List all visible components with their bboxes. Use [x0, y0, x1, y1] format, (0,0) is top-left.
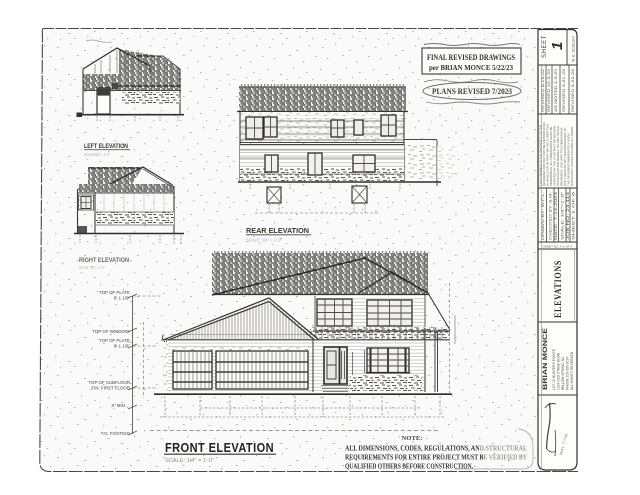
svg-text:JOB NO: 23-114: JOB NO: 23-114	[566, 192, 570, 240]
svg-text:DATE: 7-14-2023: DATE: 7-14-2023	[554, 192, 558, 240]
svg-text:W. E. SCULLEY: W. E. SCULLEY	[572, 35, 576, 62]
svg-text:TOP OF WINDOW: TOP OF WINDOW	[92, 329, 130, 334]
svg-text:CHECKED BY: B.M.: CHECKED BY: B.M.	[549, 192, 553, 240]
svg-text:REVISED 10-3-22: REVISED 10-3-22	[547, 69, 551, 112]
svg-text:SCALE: 1/4" = 1'-0": SCALE: 1/4" = 1'-0"	[79, 265, 105, 270]
svg-text:SCALE: 1/4" = 1'-0": SCALE: 1/4" = 1'-0"	[165, 458, 214, 464]
svg-text:REQUIREMENTS FOR ENTIRE PROJEC: REQUIREMENTS FOR ENTIRE PROJECT MUST BE …	[345, 454, 527, 462]
svg-text:PLANS REVISED 7/2023: PLANS REVISED 7/2023	[432, 87, 512, 96]
svg-text:BRIAN MONCE: BRIAN MONCE	[543, 328, 549, 390]
svg-text:AS NOTED 1-9-23: AS NOTED 1-9-23	[554, 69, 558, 112]
svg-text:REVISED 3-21-23: REVISED 3-21-23	[562, 69, 566, 112]
svg-text:ELEVATIONS: ELEVATIONS	[554, 260, 564, 318]
svg-text:SHEET NO. A-1 OF 6: SHEET NO. A-1 OF 6	[543, 245, 572, 249]
svg-text:SCALE: 1/4"=1'-0": SCALE: 1/4"=1'-0"	[561, 191, 565, 240]
svg-text:per BRIAN MONCE 5/22/23: per BRIAN MONCE 5/22/23	[429, 63, 513, 72]
svg-text:FRONT ELEVATION: FRONT ELEVATION	[165, 440, 274, 455]
svg-text:8'-1 1/8": 8'-1 1/8"	[114, 296, 131, 301]
svg-text:TOP OF SUBFLOOR: TOP OF SUBFLOOR	[88, 380, 130, 385]
svg-text:ALL DIMENSIONS, CODES, REGULAT: ALL DIMENSIONS, CODES, REGULATIONS, AND …	[345, 445, 527, 453]
svg-text:TOP OF PLATE: TOP OF PLATE	[99, 338, 130, 343]
svg-text:TOP OF PLATE: TOP OF PLATE	[99, 290, 130, 295]
svg-text:RIGHT ELEVATION: RIGHT ELEVATION	[79, 257, 129, 264]
svg-text:9'-1 1/8": 9'-1 1/8"	[114, 344, 131, 349]
svg-text:1: 1	[549, 42, 566, 50]
svg-text:ALL RIGHTS RESERVED: ALL RIGHTS RESERVED	[570, 351, 574, 390]
svg-text:SHEET 1 OF 6: SHEET 1 OF 6	[572, 192, 576, 240]
svg-text:LEFT ELEVATION: LEFT ELEVATION	[84, 143, 128, 150]
svg-text:T.O. FOOTING: T.O. FOOTING	[101, 431, 131, 436]
svg-text:PHONE 919-555-0134: PHONE 919-555-0134	[566, 357, 570, 390]
svg-text:REVISED 5-22-23: REVISED 5-22-23	[571, 69, 575, 112]
svg-text:SCALE: 1/4" = 1'-0": SCALE: 1/4" = 1'-0"	[246, 238, 282, 243]
svg-text:REAR ELEVATION: REAR ELEVATION	[246, 226, 309, 235]
svg-text:SHEET: SHEET	[542, 35, 548, 58]
svg-text:FIN. FIRST FLOOR: FIN. FIRST FLOOR	[92, 386, 130, 391]
svg-text:FINAL REVISED DRAWINGS: FINAL REVISED DRAWINGS	[427, 53, 515, 62]
svg-text:1234 OLD STAGE ROAD: 1234 OLD STAGE ROAD	[557, 352, 561, 390]
svg-text:8" MIN.: 8" MIN.	[112, 403, 127, 408]
svg-text:NOTE:: NOTE:	[402, 435, 423, 442]
svg-text:WILLOW SPRING, NC: WILLOW SPRING, NC	[561, 356, 565, 390]
svg-text:DISCOVERY. CODES GOVERN ALL WO: DISCOVERY. CODES GOVERN ALL WORK.	[570, 126, 574, 186]
svg-text:QUALIFIED OTHERS BEFORE CONSTR: QUALIFIED OTHERS BEFORE CONSTRUCTION.	[345, 463, 473, 471]
svg-text:SCALE: 1/4" = 1'-0": SCALE: 1/4" = 1'-0"	[84, 152, 110, 157]
svg-text:LOT 12 HUNTERS POINTE: LOT 12 HUNTERS POINTE	[552, 348, 556, 390]
